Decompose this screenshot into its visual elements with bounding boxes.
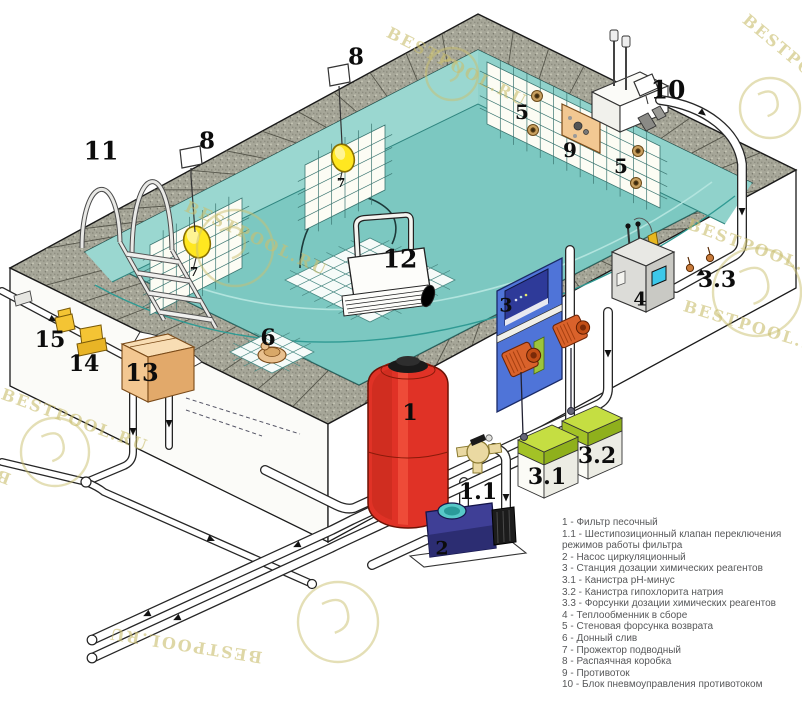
- label-pneumo-block: 10: [651, 78, 686, 103]
- label-skimmer: 13: [125, 361, 158, 385]
- label-pump: 2: [435, 540, 448, 559]
- legend-line: 3 - Станция дозации химических реагентов: [562, 563, 802, 575]
- label-dosing-station: 3: [499, 297, 512, 316]
- legend-line: 3.1 - Канистра pH-минус: [562, 575, 802, 587]
- legend-line: 5 - Стеновая форсунка возврата: [562, 621, 802, 633]
- diagram-stage: 118877595103.312613141511.12343.13.2 BES…: [0, 0, 802, 716]
- legend: 1 - Фильтр песочный1.1 - Шестипозиционны…: [562, 517, 802, 691]
- legend-line: 10 - Блок пневмоуправления противотоком: [562, 679, 802, 691]
- label-canister-ph: 3.1: [528, 466, 566, 488]
- label-valve-14: 14: [69, 353, 100, 375]
- label-sand-filter: 1: [402, 402, 417, 424]
- label-heat-exchanger: 4: [633, 291, 646, 310]
- legend-line: 7 - Прожектор подводный: [562, 645, 802, 657]
- legend-line: 3.3 - Форсунки дозации химических реаген…: [562, 598, 802, 610]
- legend-line: 2 - Насос циркуляционный: [562, 552, 802, 564]
- legend-line: 8 - Распаячная коробка: [562, 656, 802, 668]
- label-valve-15: 15: [35, 329, 66, 351]
- label-six-way-valve: 1.1: [459, 481, 497, 503]
- label-ladder: 11: [84, 139, 119, 164]
- label-main-drain: 6: [260, 327, 275, 349]
- label-junction-left: 8: [199, 130, 215, 153]
- label-light-center: 7: [337, 177, 345, 189]
- sand-filter-icon: [368, 356, 448, 528]
- label-light-left: 7: [190, 266, 198, 278]
- legend-line: 1 - Фильтр песочный: [562, 517, 802, 529]
- legend-line: 1.1 - Шестипозиционный клапан переключен…: [562, 529, 802, 552]
- label-injectors: 3.3: [698, 269, 736, 291]
- label-counterflow: 9: [563, 140, 577, 160]
- legend-line: 9 - Противоток: [562, 668, 802, 680]
- legend-line: 6 - Донный слив: [562, 633, 802, 645]
- legend-line: 3.2 - Канистра гипохлорита натрия: [562, 587, 802, 599]
- legend-line: 4 - Теплообменник в сборе: [562, 610, 802, 622]
- label-jet-lower: 5: [614, 156, 628, 176]
- label-canister-cl: 3.2: [578, 445, 616, 467]
- label-robot: 12: [383, 247, 418, 272]
- label-junction-center: 8: [348, 46, 364, 69]
